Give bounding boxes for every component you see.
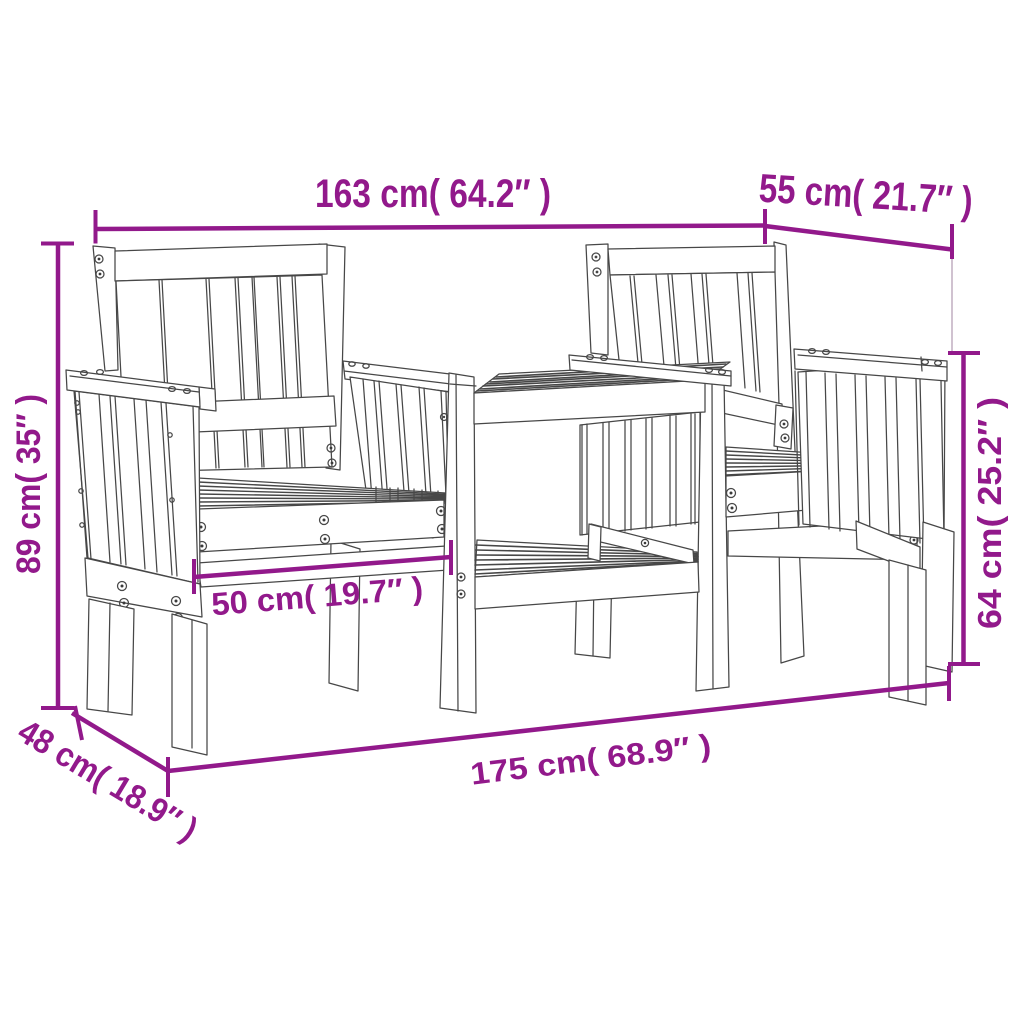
svg-text:64 cm( 25.2″ ): 64 cm( 25.2″ ) bbox=[971, 397, 1008, 629]
svg-text:89 cm( 35″ ): 89 cm( 35″ ) bbox=[10, 394, 48, 574]
svg-text:163 cm( 64.2″ ): 163 cm( 64.2″ ) bbox=[315, 172, 551, 216]
